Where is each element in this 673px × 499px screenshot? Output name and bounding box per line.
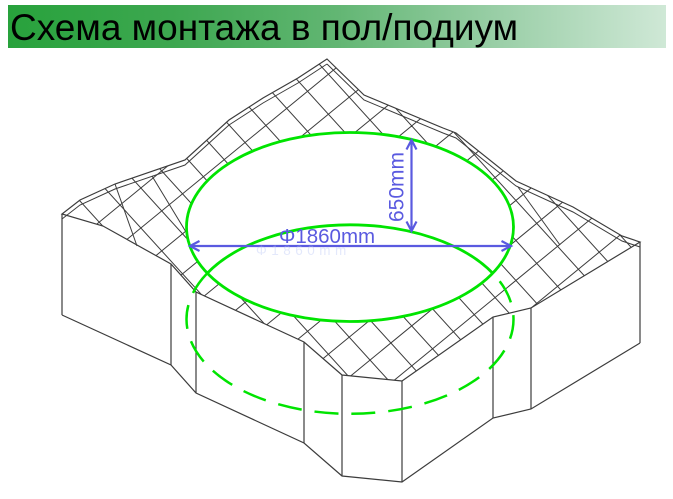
svg-text:650mm: 650mm — [386, 152, 409, 222]
svg-text:Φ1860mm: Φ1860mm — [279, 225, 375, 248]
